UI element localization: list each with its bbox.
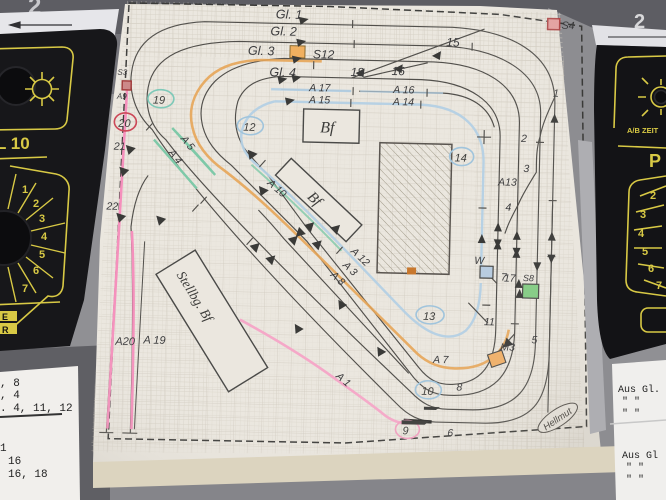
- svg-text:7: 7: [656, 280, 662, 292]
- svg-text:R: R: [2, 325, 9, 335]
- svg-text:S4: S4: [562, 20, 575, 32]
- svg-text:L 10: L 10: [0, 134, 30, 153]
- svg-text:6: 6: [648, 263, 654, 275]
- svg-text:1: 1: [0, 443, 7, 455]
- svg-text:, 4: , 4: [0, 390, 20, 402]
- svg-text:1: 1: [22, 184, 28, 196]
- svg-text:16, 18: 16, 18: [8, 469, 48, 481]
- svg-text:" ": " ": [626, 474, 644, 486]
- svg-text:5: 5: [39, 249, 45, 261]
- svg-text:Aus Gl.: Aus Gl.: [618, 384, 660, 396]
- svg-text:5: 5: [642, 246, 648, 258]
- svg-text:6: 6: [33, 265, 39, 277]
- svg-text:A/B ZEIT: A/B ZEIT: [627, 126, 659, 135]
- svg-text:3: 3: [640, 209, 646, 221]
- svg-text:7: 7: [22, 283, 28, 295]
- svg-text:4: 4: [41, 231, 48, 243]
- svg-text:, 8: , 8: [0, 378, 20, 390]
- svg-text:2: 2: [33, 198, 39, 210]
- svg-text:Aus Gl: Aus Gl: [622, 450, 658, 462]
- svg-text:" ": " ": [622, 408, 640, 420]
- svg-text:" ": " ": [622, 396, 640, 408]
- svg-text:4: 4: [638, 228, 645, 240]
- svg-text:E: E: [2, 312, 8, 322]
- svg-text:2: 2: [650, 190, 656, 202]
- svg-text:3: 3: [39, 213, 45, 225]
- svg-text:" ": " ": [626, 462, 644, 474]
- svg-text:16: 16: [8, 456, 21, 468]
- svg-text:P: P: [649, 151, 661, 171]
